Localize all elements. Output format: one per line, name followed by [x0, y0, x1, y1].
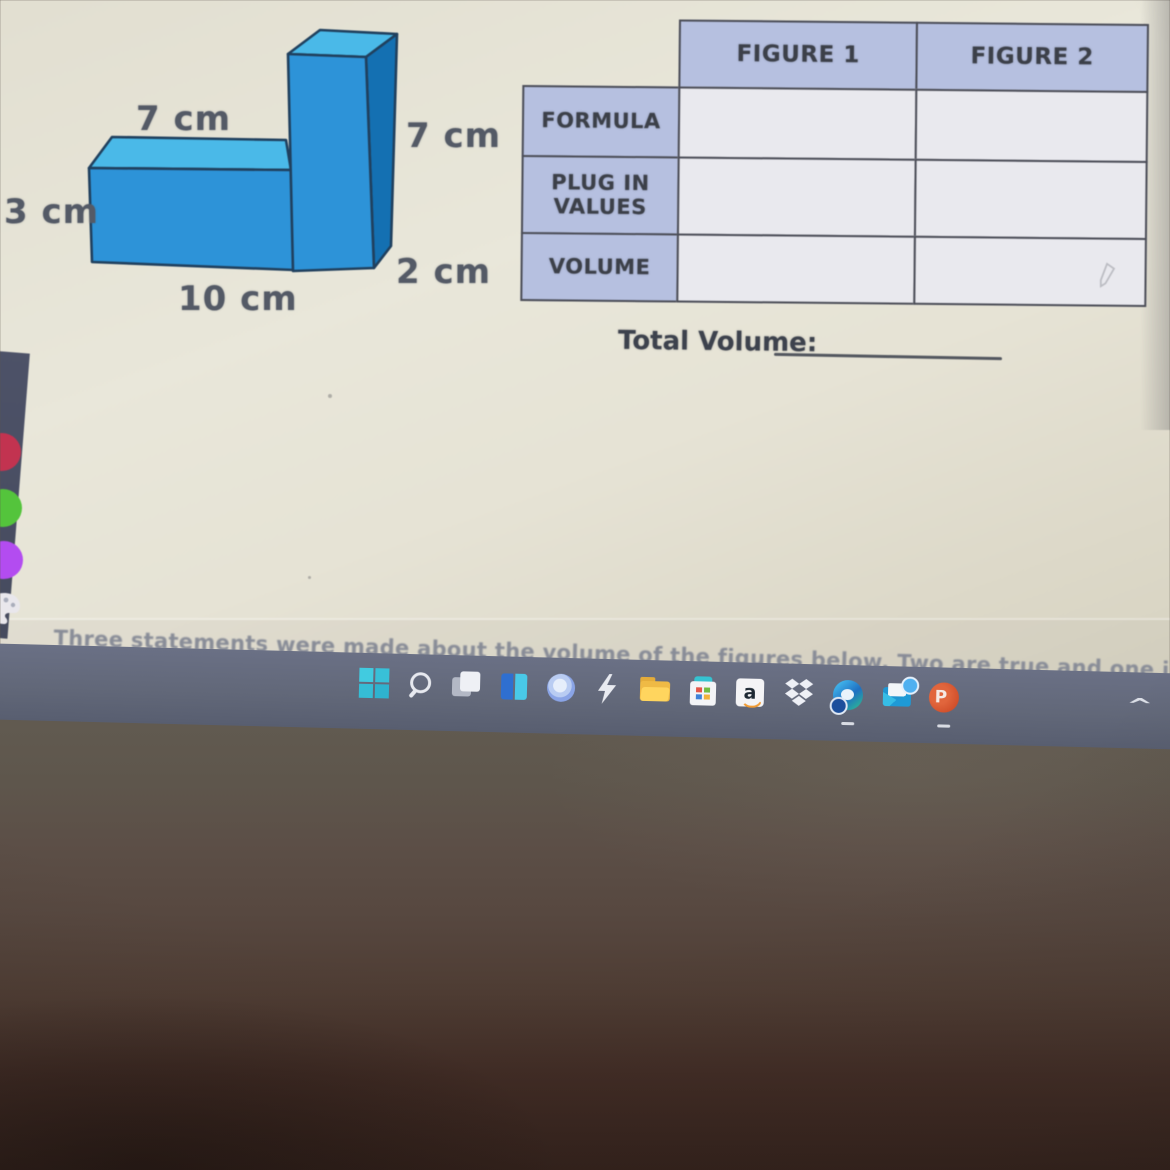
task-view-icon — [451, 669, 484, 702]
worksheet-page: 7 cm 3 cm 10 cm 7 cm 2 cm FIGURE 1 FIGUR… — [0, 0, 1170, 716]
round-blue-app-icon — [545, 671, 578, 704]
microsoft-store-button[interactable] — [687, 675, 720, 708]
edge-active-indicator — [841, 722, 854, 725]
edge-browser-button[interactable] — [832, 679, 865, 712]
round-blue-app-button[interactable] — [545, 671, 578, 704]
task-view-button[interactable] — [451, 669, 484, 702]
dropbox-icon — [783, 677, 816, 710]
amazon-icon: a — [734, 676, 767, 709]
dimension-label-10cm-bottom: 10 cm — [178, 279, 298, 319]
powerpoint-icon: P — [928, 681, 961, 714]
lightning-icon — [591, 673, 624, 706]
volume-table: FIGURE 1 FIGURE 2 FORMULA PLUG IN VALUES… — [521, 19, 1148, 306]
pencil-cursor-icon — [1094, 260, 1120, 289]
mail-button[interactable] — [882, 680, 915, 713]
microsoft-store-icon — [687, 675, 720, 708]
amazon-button[interactable]: a — [734, 676, 767, 709]
column-header-figure-1: FIGURE 1 — [678, 19, 918, 90]
figure-2-prism — [288, 30, 397, 271]
row-header-volume: VOLUME — [520, 232, 679, 303]
dropbox-button[interactable] — [783, 677, 816, 710]
powerpoint-button[interactable]: P — [928, 681, 961, 714]
row-header-formula: FORMULA — [522, 85, 681, 159]
dimension-label-3cm-left: 3 cm — [4, 192, 99, 232]
file-explorer-button[interactable] — [639, 674, 672, 707]
dimension-label-7cm-right: 7 cm — [406, 116, 501, 156]
cell-plug-in-figure-2 — [914, 159, 1148, 240]
file-explorer-icon — [639, 674, 672, 707]
cell-formula-figure-1 — [678, 86, 918, 160]
purple-color-swatch[interactable] — [0, 541, 23, 579]
column-header-figure-2: FIGURE 2 — [915, 22, 1149, 93]
paper-speck — [308, 576, 311, 579]
edge-browser-icon — [832, 679, 865, 712]
cell-plug-in-figure-1 — [677, 156, 917, 237]
photo-of-laptop-screen: 7 cm 3 cm 10 cm 7 cm 2 cm FIGURE 1 FIGUR… — [0, 0, 1170, 1170]
dimension-label-2cm-depth: 2 cm — [396, 252, 491, 292]
search-icon — [404, 668, 437, 701]
blue-panels-app-button[interactable] — [498, 670, 531, 703]
start-icon — [358, 667, 391, 700]
search-button[interactable] — [404, 668, 437, 701]
cell-volume-figure-1 — [676, 233, 916, 304]
powerpoint-active-indicator — [937, 724, 950, 727]
start-button[interactable] — [358, 667, 391, 700]
lightning-app-button[interactable] — [591, 673, 624, 706]
dimension-label-7cm-top: 7 cm — [136, 99, 231, 139]
paper-speck — [328, 394, 332, 398]
row-header-plug-in-values: PLUG IN VALUES — [521, 155, 680, 236]
table-corner-spacer — [523, 19, 680, 87]
edge-profile-badge — [829, 697, 847, 715]
cell-formula-figure-2 — [915, 89, 1149, 163]
blue-panels-app-icon — [498, 670, 531, 703]
show-hidden-icons-chevron[interactable]: ^ — [1126, 694, 1154, 717]
mail-icon — [882, 680, 915, 713]
palette-icon[interactable] — [0, 590, 22, 628]
mail-notification-badge — [901, 676, 919, 694]
figure-1-prism — [89, 137, 294, 270]
powerpoint-letter: P — [934, 687, 947, 707]
